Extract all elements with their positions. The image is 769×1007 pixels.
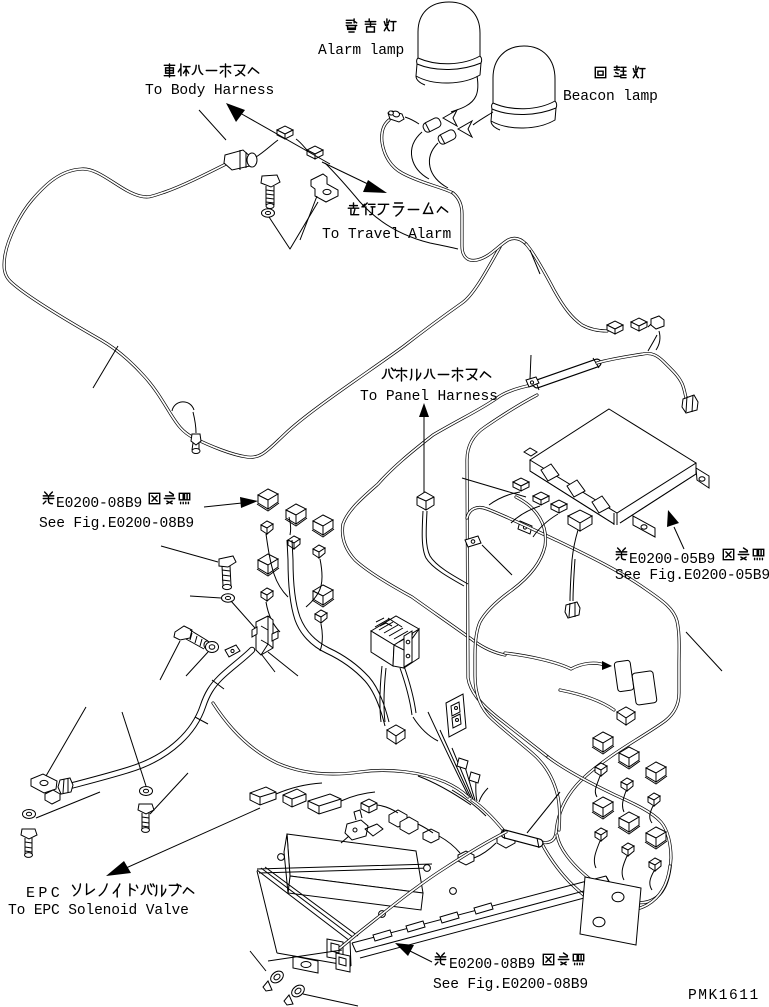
svg-text:See Fig.E0200-08B9: See Fig.E0200-08B9 — [39, 516, 194, 532]
svg-text:Beacon lamp: Beacon lamp — [563, 89, 658, 105]
svg-text:To Travel Alarm: To Travel Alarm — [322, 227, 452, 243]
svg-text:PMK1611: PMK1611 — [688, 988, 760, 1004]
svg-text:EPC: EPC — [26, 885, 63, 902]
svg-text:Alarm lamp: Alarm lamp — [318, 43, 404, 59]
svg-text:See Fig.E0200-05B9: See Fig.E0200-05B9 — [615, 568, 769, 584]
svg-text:To EPC Solenoid Valve: To EPC Solenoid Valve — [8, 903, 189, 919]
svg-text:E0200-08B9: E0200-08B9 — [56, 496, 142, 512]
svg-text:E0200-08B9: E0200-08B9 — [449, 957, 535, 973]
svg-text:See Fig.E0200-08B9: See Fig.E0200-08B9 — [433, 977, 588, 993]
svg-text:E0200-05B9: E0200-05B9 — [629, 552, 715, 568]
svg-text:To Panel Harness: To Panel Harness — [360, 389, 498, 405]
svg-text:To Body Harness: To Body Harness — [145, 83, 274, 99]
